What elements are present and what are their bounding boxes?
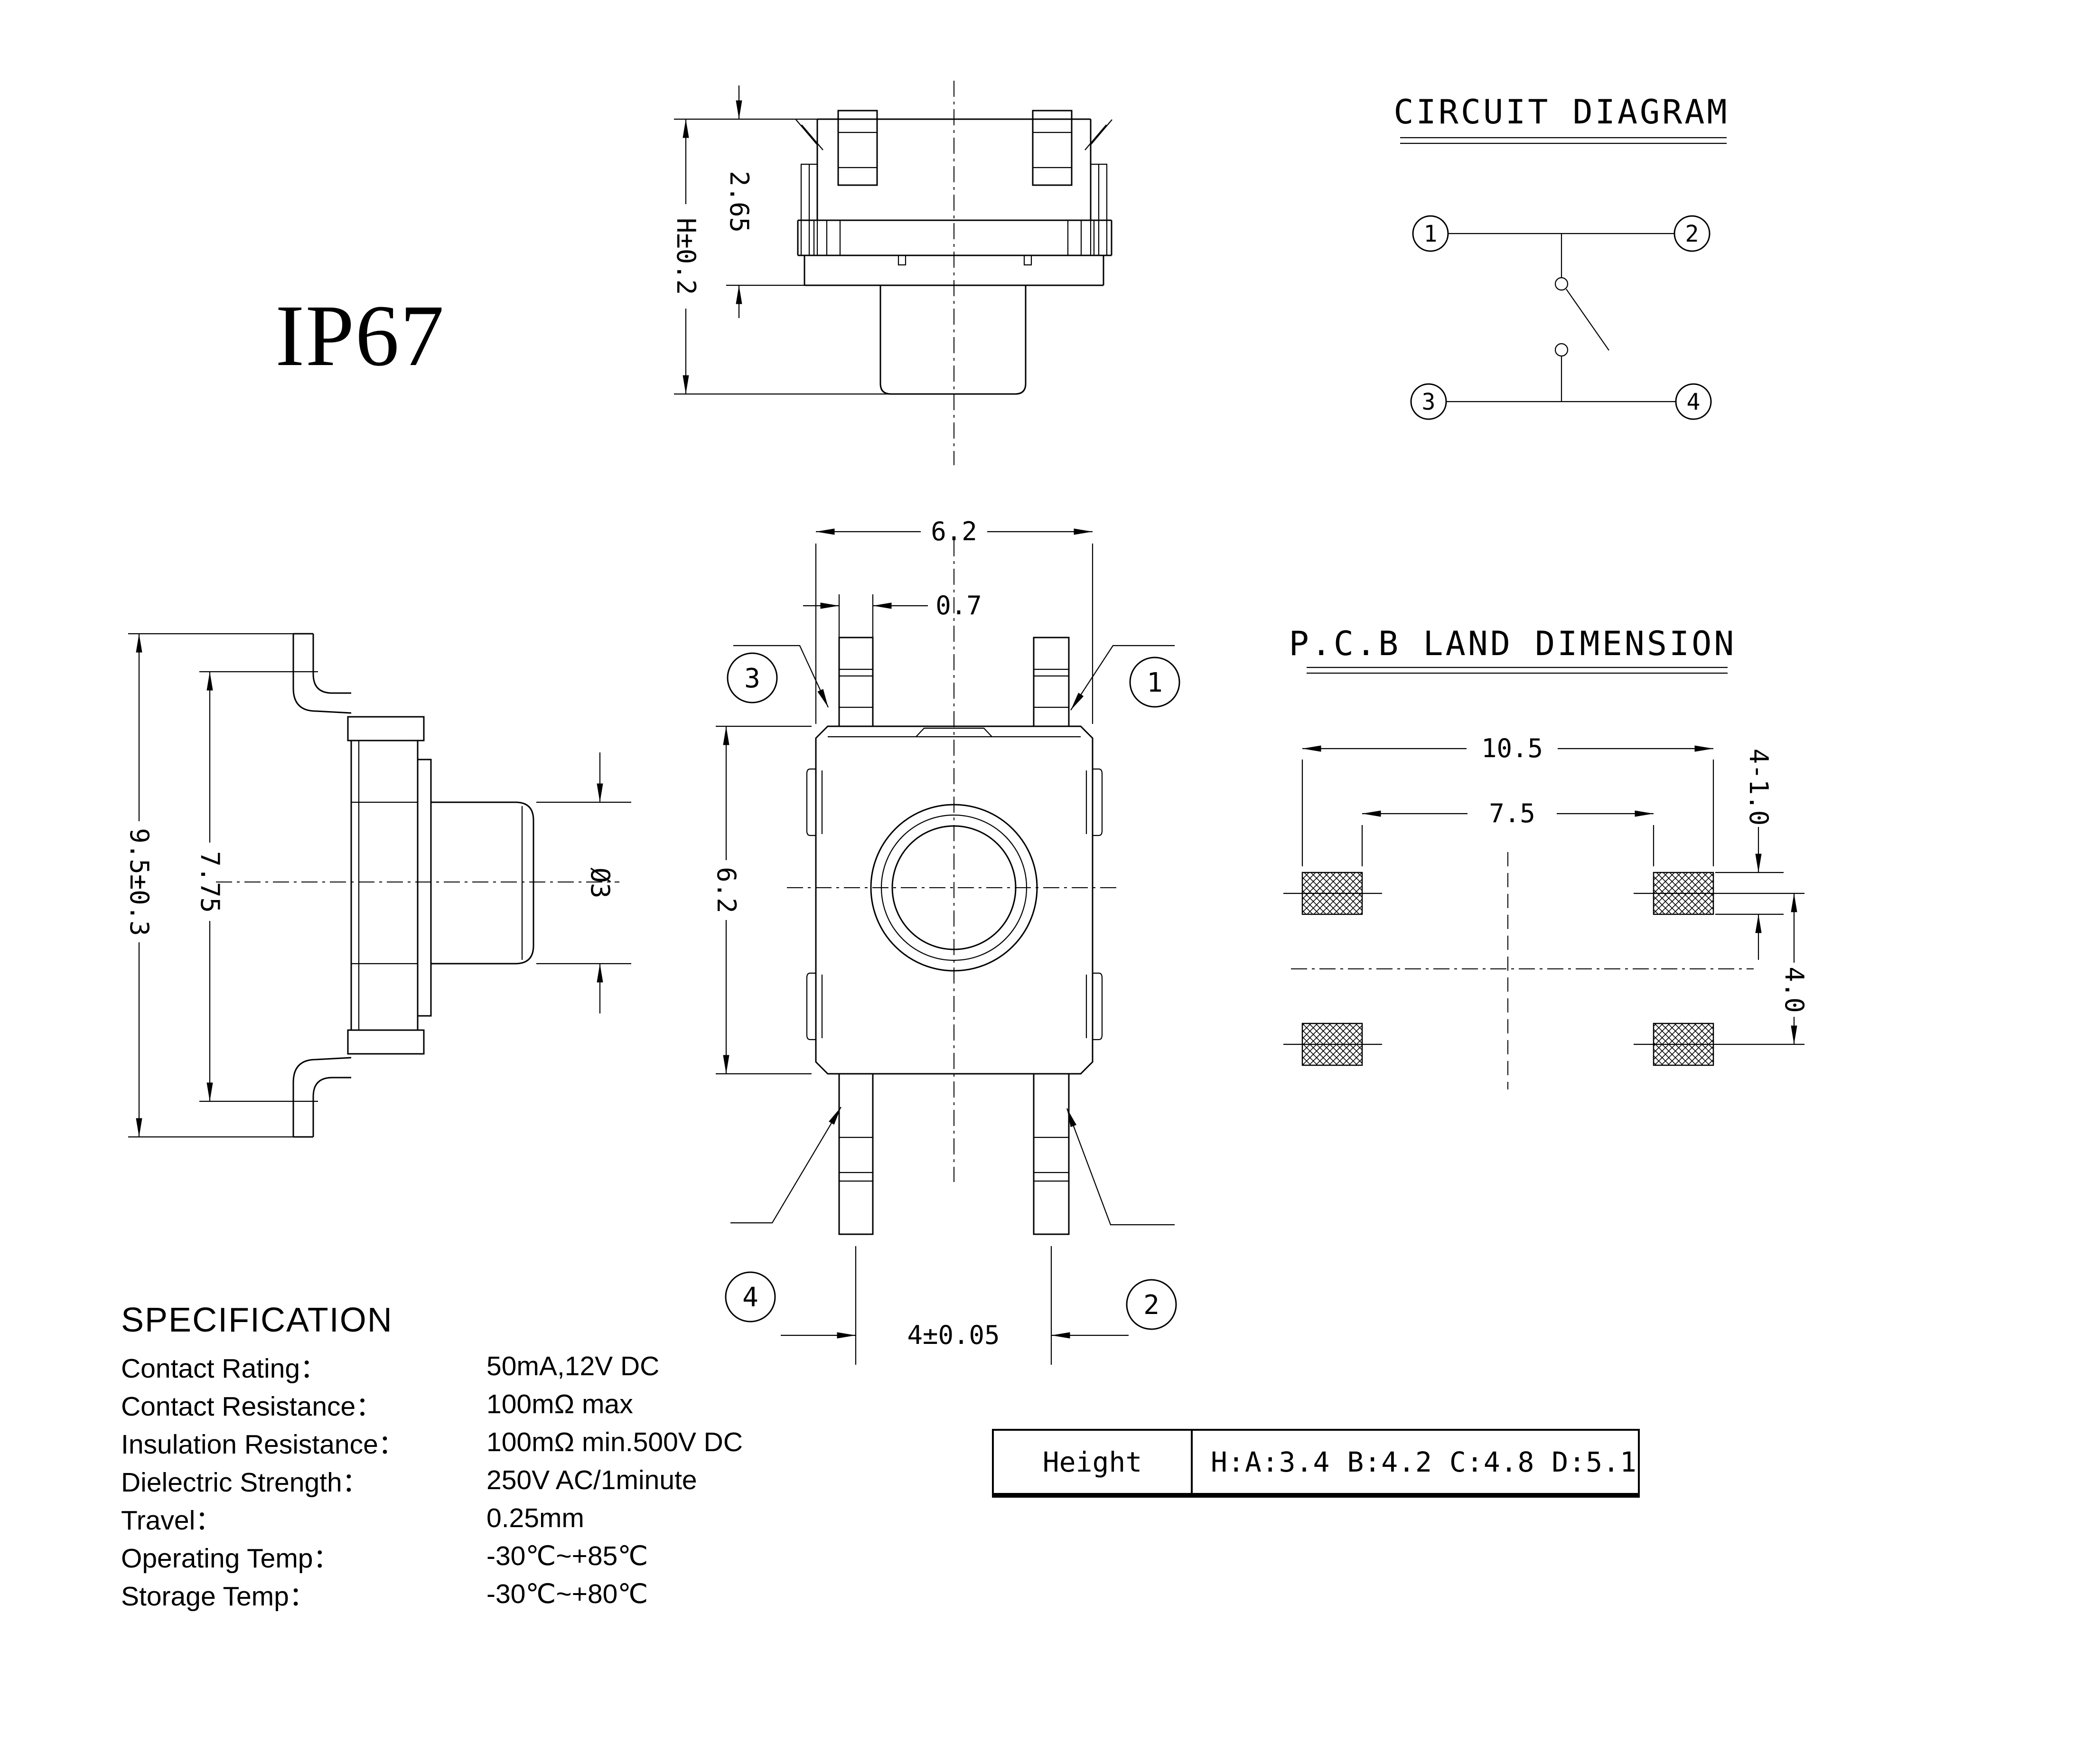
front-pin-left — [838, 111, 877, 185]
spec-row-contact-resistance: Contact Resistance： 100mΩ max — [121, 1385, 861, 1423]
stem-flange — [418, 760, 431, 1016]
cover-top-cap — [348, 717, 424, 741]
base-foot — [898, 255, 906, 265]
height-table: Height H:A:3.4 B:4.2 C:4.8 D:5.1 — [992, 1429, 1640, 1498]
switch-lever — [1566, 289, 1609, 350]
clip-left-lower — [807, 973, 816, 1040]
contact-bottom — [1555, 344, 1568, 356]
callout-2-number: 2 — [1143, 1290, 1159, 1321]
cover-bottom-cap — [348, 1030, 424, 1054]
lead-top-inner — [313, 634, 351, 693]
front-pin-right-detail — [1033, 132, 1072, 168]
lead-bottom-outer — [293, 1058, 351, 1137]
callout-4-leader — [730, 1107, 841, 1223]
front-pin-left-detail — [838, 132, 877, 168]
ext-lines-stem — [536, 802, 631, 964]
callout-3-number: 3 — [744, 663, 760, 694]
lead-top-outer — [293, 634, 351, 713]
spec-label: Storage Temp： — [121, 1575, 486, 1614]
clip-left-upper — [807, 769, 816, 835]
pcb-inner-dim: 7.5 — [1489, 798, 1535, 828]
spec-value: 50mA,12V DC — [486, 1351, 861, 1382]
clip-right-lower — [1093, 973, 1102, 1040]
pin-3-number: 3 — [1422, 389, 1436, 415]
pcb-outer-dim: 10.5 — [1481, 733, 1543, 763]
stem-diameter-dim: Ø3 — [585, 867, 615, 898]
spec-value: -30℃~+85℃ — [486, 1540, 861, 1572]
front-total-height-dim: H±0.2 — [671, 218, 701, 295]
pin-4-number: 4 — [1687, 389, 1701, 415]
pin-bottom-right-detail — [1034, 1137, 1069, 1181]
ip-rating-label: IP67 — [275, 292, 445, 380]
circuit-diagram-title: CIRCUIT DIAGRAM — [1393, 93, 1729, 131]
base-foot — [1024, 255, 1031, 265]
side-overall-dim: 9.5±0.3 — [124, 828, 154, 936]
pin-top-left-detail — [839, 669, 873, 707]
spec-row-operating-temp: Operating Temp： -30℃~+85℃ — [121, 1537, 861, 1575]
clip-left-wing — [796, 120, 823, 150]
spec-label: Dielectric Strength： — [121, 1461, 486, 1500]
lead-bottom-inner — [313, 1078, 351, 1137]
height-table-label: Height — [994, 1431, 1193, 1493]
button-stem-side — [431, 802, 533, 964]
spec-value: 250V AC/1minute — [486, 1464, 861, 1496]
spec-row-travel: Travel： 0.25mm — [121, 1499, 861, 1537]
pcb-land-title: P.C.B LAND DIMENSION — [1289, 624, 1737, 663]
spec-row-contact-rating: Contact Rating： 50mA,12V DC — [121, 1347, 861, 1385]
callout-2-leader — [1067, 1108, 1175, 1225]
row-pitch-dim: 4.0 — [1779, 966, 1809, 1013]
pad-size-dim: 4-1.0 — [1744, 749, 1774, 826]
datasheet-page: IP67 H±0.2 2.65 — [0, 0, 2094, 1764]
spec-label: Insulation Resistance： — [121, 1423, 486, 1462]
spec-label: Travel： — [121, 1499, 486, 1538]
front-view-drawing: H±0.2 2.65 — [655, 66, 1177, 541]
pin-top-right — [1034, 638, 1069, 726]
clip-right-upper — [1093, 769, 1102, 835]
contact-top — [1555, 278, 1568, 290]
side-view-drawing: 9.5±0.3 7.75 Ø3 — [114, 603, 650, 1168]
specification-heading: SPECIFICATION — [121, 1301, 861, 1340]
title-underline — [1307, 667, 1728, 673]
pin-top-right-detail — [1034, 669, 1069, 707]
circuit-diagram: CIRCUIT DIAGRAM 1 2 3 4 — [1372, 76, 1751, 446]
spec-value: 0.25mm — [486, 1502, 861, 1534]
spec-row-dielectric-strength: Dielectric Strength： 250V AC/1minute — [121, 1461, 861, 1499]
pin-bottom-left-detail — [839, 1137, 873, 1181]
body-detail-lines — [351, 741, 418, 1030]
height-table-value: H:A:3.4 B:4.2 C:4.8 D:5.1 — [1193, 1431, 1638, 1493]
top-view-drawing: 6.2 0.7 3 1 — [693, 503, 1215, 1367]
spec-label: Operating Temp： — [121, 1537, 486, 1576]
spec-value: -30℃~+80℃ — [486, 1578, 861, 1610]
title-underline — [1400, 138, 1727, 143]
front-pin-right — [1033, 111, 1072, 185]
spec-value: 100mΩ max — [486, 1389, 861, 1420]
pin-pitch-dim: 4±0.05 — [907, 1320, 1000, 1350]
spec-label: Contact Rating： — [121, 1347, 486, 1386]
spec-row-storage-temp: Storage Temp： -30℃~+80℃ — [121, 1575, 861, 1613]
pcb-land-drawing: P.C.B LAND DIMENSION 10.5 7.5 4-1.0 4.0 — [1277, 612, 1837, 1144]
pin-top-left — [839, 638, 873, 726]
pin-bottom-left — [839, 1074, 873, 1234]
front-upper-height-dim: 2.65 — [724, 171, 754, 233]
pin-2-number: 2 — [1685, 221, 1699, 247]
button-stem — [880, 285, 1026, 394]
callout-1-number: 1 — [1147, 667, 1163, 698]
spec-row-insulation-resistance: Insulation Resistance： 100mΩ min.500V DC — [121, 1423, 861, 1461]
top-height-dim: 6.2 — [711, 867, 741, 913]
specification-block: SPECIFICATION Contact Rating： 50mA,12V D… — [121, 1301, 861, 1613]
spec-label: Contact Resistance： — [121, 1385, 486, 1424]
flange-band — [798, 220, 1112, 255]
clip-right-wing — [1085, 120, 1112, 150]
body-block — [351, 741, 418, 1030]
pin-1-number: 1 — [1424, 221, 1438, 247]
spec-value: 100mΩ min.500V DC — [486, 1426, 861, 1458]
pin-width-dim: 0.7 — [935, 591, 982, 620]
pin-bottom-right — [1034, 1074, 1069, 1234]
